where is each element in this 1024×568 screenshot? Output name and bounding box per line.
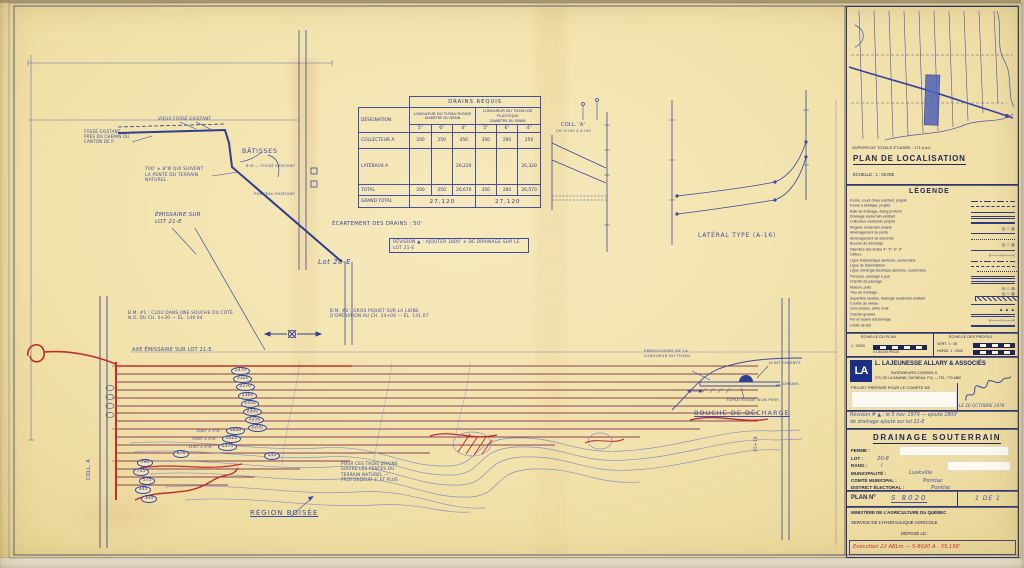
row-value: 26,220: [452, 149, 475, 185]
plan-scale-ratio: 1 : 2000: [851, 344, 865, 348]
double-symbol-icon: [971, 281, 1015, 284]
depose-label: DÉPOSÉ LE :: [901, 531, 928, 536]
note-ecartement: ÉCARTEMENT DES DRAINS : 50': [332, 221, 422, 228]
plan-no-label: PLAN Nº: [851, 495, 876, 501]
size-header: 6": [496, 125, 517, 133]
dot-symbol-icon: [977, 271, 1018, 272]
note-fosse-chemin: FOSSÉ EXISTANT PRÈS DU CHEMIN DU CANTON …: [84, 129, 132, 144]
row-value: [475, 149, 496, 185]
dot-symbol-icon: [971, 239, 1015, 240]
cluster-length-label: 545: [264, 452, 280, 460]
legend-item-label: Ligne d'énergie électrique aérienne, sou…: [850, 270, 926, 274]
profile-lateral-title: LATÉRAL TYPE (A-16): [698, 232, 776, 240]
row-value: 26,570: [518, 185, 541, 196]
legend-item-label: Aménagement de descente: [850, 237, 923, 241]
dashdot-symbol-icon: [971, 201, 1015, 202]
legend-item-label: Diamètre des drains 4", 5", 6", 8": [850, 248, 923, 252]
legend-row: Limite de lots: [847, 323, 1018, 328]
legend-title: LÉGENDE: [909, 188, 950, 195]
designation-header: DÉSIGNATION: [359, 108, 410, 133]
table-title: DRAINS REQUIS: [410, 97, 541, 108]
thick-symbol-icon: [971, 325, 1015, 327]
size-header: 4": [518, 125, 541, 133]
legend-item-label: Superficie étudiée, drainage souterrain …: [850, 297, 925, 301]
solid-symbol-icon: [971, 233, 1015, 234]
grand-total-row: GRAND TOTAL27,12027,120: [359, 196, 541, 208]
note-trois-drains: POUR CES TROIS DRAINS SUIVRE LES PENTES …: [341, 461, 413, 482]
row-label: COLLECTEUR A: [359, 133, 410, 149]
cluster-length-label: 300: [141, 495, 157, 503]
lateral-length-label: 1375: [218, 443, 237, 451]
axis-symbol: [265, 330, 321, 338]
rang-redaction: [947, 461, 1011, 471]
company-name: L. LAJEUNESSE ALLARY & ASSOCIÉS: [875, 361, 986, 367]
service-line: SERVICE DE L'HYDRAULIQUE AGRICOLE: [851, 520, 937, 525]
x-symbol-icon: ×——×——×: [971, 318, 1015, 323]
row-value: [496, 149, 517, 185]
legend-item-label: Regard, souterrain projeté: [850, 226, 923, 230]
note-bm1: B.M. #1 : CLOU DANS UNE SOUCHE DU CÔTÉ N…: [128, 311, 240, 322]
legend-item-label: Trou de sondage: [850, 291, 923, 295]
note-revision-box: RÉVISION ▲ : AJOUTER 1800' ± DE DRAINAGE…: [389, 238, 529, 253]
row-value: 250: [431, 185, 452, 196]
plan-title: DRAINAGE SOUTERRAIN: [873, 433, 1001, 444]
exec-note: Exécution 22 ABLm — S-8020 A : 35,158': [853, 544, 960, 550]
plan-no-value: S 8020: [891, 494, 927, 503]
company-date: LE 26 OCTOBRE 1978: [959, 403, 1004, 408]
revision-line1: Révision # ▲ : le 5 nov. 1979 — ajouté 1…: [850, 413, 958, 418]
locator-superficie: SUPERFICIE TOTALE ÉTUDIÉE : 171.4 AC.: [852, 145, 932, 150]
plan-title-box: DRAINAGE SOUTERRAIN FERME : LOT : 20-E R…: [846, 428, 1019, 492]
legend-item-label: Zone boisée, arbre isolé: [850, 308, 923, 312]
profile-scale-bar-vert: [973, 343, 1015, 348]
row-value: 26,320: [518, 149, 541, 185]
grand-total-label: GRAND TOTAL: [359, 196, 410, 208]
legend-item-label: Chemin de passage: [850, 280, 923, 284]
circles-symbol-icon: ◎ ○ ◍: [971, 226, 1015, 231]
scales-box: ÉCHELLE DU PLAN 1 : 2000 0 100 200 PIEDS…: [846, 332, 1019, 358]
legend-item-label: Raie de drainage, étang profond: [850, 210, 923, 214]
legend-box: LÉGENDE Fossé, cours d'eau existant, pro…: [846, 184, 1019, 334]
profile-coll-title: COLL. 'A': [561, 122, 585, 128]
double-symbol-icon: [971, 276, 1015, 279]
row-label: LATÉRAUX A: [359, 149, 410, 185]
legend-item-label: Courbe de niveau: [850, 302, 923, 306]
circles-symbol-icon: ◎ ○ ◍: [971, 286, 1015, 291]
field-label-lot: LOT :: [851, 456, 863, 461]
note-700: 700' ± 8"Ø QUI SUIVENT LA PENTE DU TERRA…: [145, 167, 211, 184]
lateral-length-label: 2350: [241, 400, 260, 408]
note-axe-emissaire: AXE ÉMISSAIRE SUR LOT 21-E: [132, 347, 212, 353]
lateral-length-label: 1625: [222, 435, 241, 443]
diam-label: DIAMÈTRE DU DRAIN: [411, 116, 473, 120]
profile-coll-range: CH. 0+00 À 4+50: [556, 129, 591, 133]
company-sub: INGÉNIEURS CONSEILS: [891, 370, 937, 375]
legend-item-label: Fer et repère d'arpentage: [850, 319, 923, 323]
ministry-box: MINISTÈRE DE L'AGRICULTURE DU QUÉBEC SER…: [846, 506, 1019, 558]
cluster-length-label: 676: [173, 450, 189, 458]
note-ponceau: PONCEAU EXISTANT: [254, 192, 295, 197]
outlet-label-tuyau: TUYAU RIGIDE NON PERF.: [726, 398, 780, 403]
lateral-length-label: 1850: [226, 427, 245, 435]
company-divider: [957, 383, 958, 411]
profile-scale-bar-horiz: [973, 350, 1015, 355]
size-header: 5": [410, 125, 431, 133]
drains-table-grid: DRAINS REQUISDÉSIGNATIONLONGUEUR DU TUYA…: [358, 96, 541, 208]
legend-item-label: Fossé, cours d'eau existant, projeté: [850, 199, 923, 203]
title-block-panel: SUPERFICIE TOTALE ÉTUDIÉE : 171.4 AC. PL…: [846, 6, 1019, 556]
row-value: 450: [452, 133, 475, 149]
diam-label: DIAMÈTRE DU DRAIN: [477, 119, 539, 123]
row-value: [410, 149, 431, 185]
solid-symbol-icon: [971, 304, 1015, 305]
legend-item-label: Ligne de transmission: [850, 264, 923, 268]
row-value: 200: [410, 133, 431, 149]
note-fosse-existant: 8"Ø — FOSSÉ EXISTANT: [246, 164, 295, 169]
row-value: 350: [475, 185, 496, 196]
legend-item-label: Ponceau, passage à gué: [850, 275, 923, 279]
legend-item-label: Bouche de décharge: [850, 242, 923, 246]
grand-total-left: 27,120: [410, 196, 475, 208]
field-label-ferme: FERME :: [851, 448, 870, 453]
table-data-row: COLLECTEUR A200250450350200250: [359, 133, 541, 149]
field-label-municipalite: MUNICIPALITÉ :: [851, 471, 886, 476]
locator-title: PLAN DE LOCALISATION: [853, 154, 966, 165]
plan-no-divider: [957, 491, 958, 507]
company-logo: LA: [850, 360, 872, 382]
cluster-length-label: 790: [137, 459, 153, 467]
profile-scale-label: ÉCHELLE DES PROFILS: [949, 335, 992, 339]
company-addr: 270, DE LA SAVANE, GATINEAU, P.Q. — TÉL.…: [875, 376, 961, 380]
drains-table: DRAINS REQUISDÉSIGNATIONLONGUEUR DU TUYA…: [358, 96, 541, 208]
grand-total-right: 27,120: [475, 196, 540, 208]
outlet-label-drains: DRAINS: [783, 382, 799, 387]
profile-lateral-type: [669, 90, 809, 245]
note-bm2: B.M. #2 : GROS PIQUET SUR LA LIGNE D'OPÉ…: [330, 309, 442, 320]
legend-item-label: Maison, puits: [850, 286, 923, 290]
legend-rows: Fossé, cours d'eau existant, projetéFoss…: [847, 198, 1018, 329]
legend-item-label: Clôture: [850, 253, 923, 257]
note-batisses: BÂTISSES: [242, 147, 278, 155]
outlet-title: BOUCHE DE DÉCHARGE: [694, 409, 790, 417]
size-header: 5": [475, 125, 496, 133]
revision-line2: de drainage ajouté sur lot 21-E: [850, 420, 925, 425]
lateral-prefix-label: 1400' × 4"Ø: [196, 428, 219, 433]
revision-strip: Révision # ▲ : le 5 nov. 1979 — ajouté 1…: [846, 410, 1019, 430]
legend-item-label: Limite de lots: [850, 324, 923, 328]
note-station: 35+18: [754, 436, 760, 452]
field-value-rang: I: [881, 463, 883, 469]
legend-item-label: Aménagement de pente: [850, 232, 923, 236]
row-value: 200: [410, 185, 431, 196]
row-value: 350: [475, 133, 496, 149]
circles-symbol-icon: ◎ ○ ◍: [971, 242, 1015, 247]
row-value: 200: [496, 133, 517, 149]
table-group-row: DÉSIGNATIONLONGUEUR DU TUYAU RIGIDEDIAMÈ…: [359, 108, 541, 125]
table-data-row: LATÉRAUX A26,22026,320: [359, 149, 541, 185]
hatch-symbol-icon: [975, 296, 1018, 301]
client-redaction: [851, 391, 957, 408]
field-value-municipalite: Luskville: [909, 470, 932, 476]
note-vieux-fosse: VIEUX FOSSÉ EXISTANT: [158, 116, 211, 121]
sheet-number: 1 DE 1: [975, 495, 1001, 502]
company-box: LA L. LAJEUNESSE ALLARY & ASSOCIÉS INGÉN…: [846, 356, 1019, 412]
dash-symbol-icon: [971, 266, 1015, 267]
dashdot-symbol-icon: [971, 261, 1015, 262]
plan-scale-units: 0 100 200 PIEDS: [873, 350, 899, 354]
profile-scale-vert: VERT. 1 : 40: [937, 342, 957, 346]
field-label-rang: RANG :: [851, 463, 867, 468]
lateral-prefix-label: 1100' × 4"Ø: [188, 444, 211, 449]
projet-label: PROJET PRÉPARÉ POUR LE COMPTE DE: [851, 385, 930, 390]
double-symbol-icon: [971, 216, 1015, 219]
solid-symbol-icon: [971, 250, 1015, 251]
row-value: [431, 149, 452, 185]
note-coll-a: COLL. A: [86, 459, 92, 480]
field-value-comte: Pontiac: [923, 478, 943, 484]
group-header: LONGUEUR DU TUYAU RIGIDEDIAMÈTRE DU DRAI…: [410, 108, 475, 125]
ferme-redaction: [899, 446, 1009, 456]
outlet-label-1: EMBOUCHURE DE LA LONGUEUR DU TUYAU: [644, 349, 700, 359]
locator-map: [847, 7, 1018, 143]
legend-item-label: Collecteur souterrain projeté: [850, 221, 923, 225]
triangles-symbol-icon: ▲ ▲ ▲: [971, 307, 1015, 312]
plan-scale-label: ÉCHELLE DU PLAN: [861, 335, 896, 339]
legend-item-label: Ligne téléphonique aérienne, souterraine: [850, 259, 923, 263]
size-header: 4": [452, 125, 475, 133]
row-label: TOTAL: [359, 185, 410, 196]
table-title-row: DRAINS REQUIS: [359, 97, 541, 108]
cluster-length-label: 345: [135, 486, 151, 494]
lateral-length-label: 2300: [243, 408, 262, 416]
field-value-lot: 20-E: [877, 456, 889, 462]
field-label-comte: COMTÉ MUNICIPAL :: [851, 478, 897, 483]
row-value: 250: [518, 133, 541, 149]
size-header: 6": [431, 125, 452, 133]
group-label: LONGUEUR DU TUYAU DE PLASTIQUE: [477, 109, 539, 118]
legend-item-label: Fossé à déblayer, projeté: [850, 204, 923, 208]
cluster-length-label: 575: [139, 477, 155, 485]
exec-note-box: Exécution 22 ABLm — S-8020 A : 35,158': [849, 540, 1016, 555]
legend-item-label: Drainage souterrain existant: [850, 215, 923, 219]
solid-symbol-icon: [971, 212, 1015, 213]
note-emissaire: ÉMISSAIRE SUR LOT 21-E: [155, 212, 211, 226]
locator-echelle: ÉCHELLE : 1 : 50,000: [853, 172, 894, 177]
scales-divider: [933, 333, 934, 357]
lateral-length-label: 2370: [231, 367, 250, 375]
lateral-length-label: 2360: [238, 392, 257, 400]
note-lot-20e: Lot 20-E: [318, 258, 351, 267]
table-data-row: TOTAL20025026,67035020026,570: [359, 185, 541, 196]
row-value: 26,670: [452, 185, 475, 196]
row-value: 200: [496, 185, 517, 196]
row-value: 250: [431, 133, 452, 149]
double-symbol-icon: [971, 314, 1015, 317]
thick-symbol-icon: [971, 222, 1015, 224]
x-symbol-icon: ×——×——×: [971, 253, 1015, 258]
dash-symbol-icon: [971, 206, 1015, 207]
entrance-sketch: [118, 30, 352, 350]
legend-item-label: Chemin gravelé: [850, 313, 923, 317]
drawing-sheet: VIEUX FOSSÉ EXISTANT FOSSÉ EXISTANT PRÈS…: [0, 0, 1024, 568]
outlet-label-joint: JOINT CIMENTÉ: [769, 361, 801, 366]
ministere-line: MINISTÈRE DE L'AGRICULTURE DU QUÉBEC: [851, 510, 946, 515]
note-region-boisee: RÉGION BOISÉE: [250, 509, 318, 518]
cluster-length-label: 745: [133, 468, 149, 476]
profile-scale-horiz: HORIZ. 1 : 2000: [937, 349, 963, 353]
lateral-prefix-label: 1300' × 4"Ø: [192, 436, 215, 441]
locator-map-box: SUPERFICIE TOTALE ÉTUDIÉE : 171.4 AC. PL…: [846, 6, 1019, 186]
group-header: LONGUEUR DU TUYAU DE PLASTIQUEDIAMÈTRE D…: [475, 108, 540, 125]
